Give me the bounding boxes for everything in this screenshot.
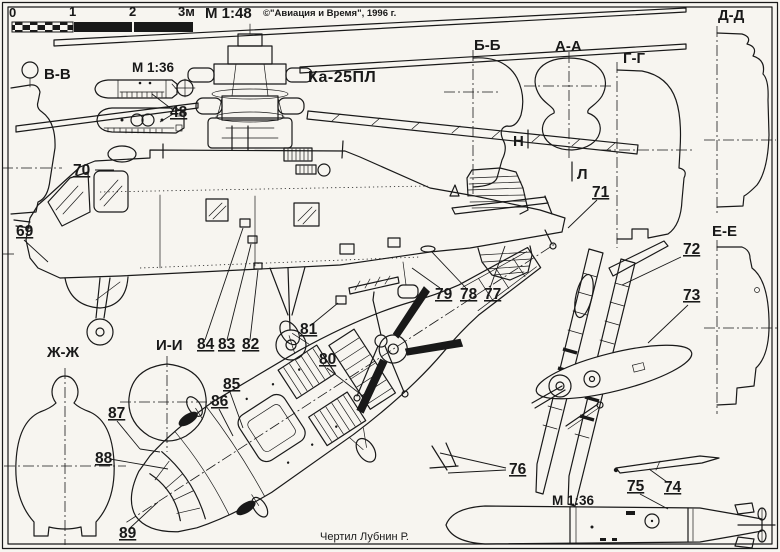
side-view — [14, 126, 565, 360]
svg-text:81: 81 — [300, 321, 318, 338]
section-zh: Ж-Ж — [4, 344, 126, 545]
nose-radome — [65, 277, 128, 308]
svg-text:Н: Н — [513, 133, 524, 150]
section-zh-label: Ж-Ж — [46, 344, 80, 361]
svg-text:85: 85 — [223, 376, 241, 393]
section-vv-label: В-В — [44, 66, 71, 83]
blueprint-page: 0 1 2 3м М 1:48 ©"Авиация и Время", 1996… — [0, 0, 780, 552]
section-vv: В-В — [2, 62, 71, 254]
ruler-tick-2: 2 — [129, 4, 136, 19]
exhaust-left — [176, 409, 200, 429]
callout-87: 87 — [108, 405, 160, 452]
credit: Чертил Лубнин Р. — [320, 531, 409, 543]
svg-text:70: 70 — [73, 162, 90, 179]
svg-text:87: 87 — [108, 405, 125, 422]
view-marker-l: Л — [572, 162, 588, 183]
callout-82: 82 — [242, 270, 259, 353]
blade-stub-2 — [380, 285, 442, 340]
section-aa: А-А — [524, 38, 614, 158]
callout-76: 76 — [440, 453, 527, 478]
callout-86: 86 — [211, 393, 233, 436]
svg-text:48: 48 — [170, 104, 188, 121]
svg-text:77: 77 — [484, 286, 501, 303]
svg-text:Л: Л — [577, 166, 588, 183]
section-bb-label: Б-Б — [474, 37, 501, 54]
ruler-tick-3m: 3м — [178, 4, 195, 19]
svg-text:79: 79 — [435, 286, 453, 303]
section-gg: Г-Г — [600, 50, 695, 248]
weapons-scale-label: М 1:36 — [132, 60, 175, 75]
svg-text:69: 69 — [16, 223, 34, 240]
main-scale-label: М 1:48 — [205, 5, 252, 22]
mad-pod — [398, 285, 418, 298]
torpedo-tail-fins — [735, 503, 775, 548]
section-aa-label: А-А — [555, 38, 582, 55]
lower-rotor-blade-right — [307, 111, 638, 154]
section-dd-label: Д-Д — [718, 7, 745, 24]
view-direction-symbol — [22, 62, 38, 78]
svg-text:82: 82 — [242, 336, 259, 353]
svg-text:78: 78 — [460, 286, 478, 303]
svg-text:73: 73 — [683, 287, 701, 304]
exhaust-right — [234, 498, 258, 518]
callout-69: 69 — [16, 223, 48, 262]
copyright: ©"Авиация и Время", 1996 г. — [263, 8, 396, 19]
section-dd: Д-Д — [704, 7, 776, 216]
blade-stub-1 — [403, 320, 465, 375]
blueprint-drawing: 0 1 2 3м М 1:48 ©"Авиация и Время", 1996… — [0, 0, 780, 552]
stabilizer-top — [532, 334, 696, 410]
callout-75: 75 — [627, 478, 668, 509]
section-ee: Е-Е — [704, 223, 777, 414]
svg-text:72: 72 — [683, 241, 700, 258]
svg-text:76: 76 — [509, 461, 527, 478]
sonobuoy-container — [95, 80, 177, 98]
section-gg-label: Г-Г — [623, 50, 645, 67]
section-ii-label: И-И — [156, 337, 183, 354]
callout-88: 88 — [95, 450, 168, 469]
ruler-tick-1: 1 — [69, 4, 76, 19]
scale-ruler: 0 1 2 3м — [9, 4, 195, 32]
section-ee-label: Е-Е — [712, 223, 737, 240]
callout-74: 74 — [649, 469, 682, 496]
callout-71: 71 — [568, 184, 610, 228]
cockpit-windows — [48, 171, 128, 226]
plan-view — [81, 173, 602, 552]
svg-text:86: 86 — [211, 393, 229, 410]
weapons-detail: М 1:36 — [95, 60, 195, 133]
svg-text:75: 75 — [627, 478, 645, 495]
svg-text:80: 80 — [319, 351, 336, 368]
svg-text:88: 88 — [95, 450, 113, 467]
svg-text:71: 71 — [592, 184, 610, 201]
section-bb: Б-Б — [444, 37, 523, 196]
callout-73: 73 — [648, 287, 701, 343]
svg-text:89: 89 — [119, 525, 137, 542]
svg-text:83: 83 — [218, 336, 236, 353]
torpedo-side-view: М 1:36 — [446, 493, 775, 548]
callout-84: 84 — [197, 228, 243, 353]
torpedo-scale-label: М 1:36 — [552, 493, 595, 508]
rotor-hub-detail — [188, 24, 312, 148]
tail-fins-side — [452, 168, 556, 280]
torpedo-winglet — [614, 456, 719, 473]
callout-89: 89 — [119, 502, 158, 542]
engine-deck-details — [100, 141, 459, 268]
ruler-tick-0: 0 — [9, 5, 16, 20]
section-ii: И-И — [120, 337, 214, 452]
